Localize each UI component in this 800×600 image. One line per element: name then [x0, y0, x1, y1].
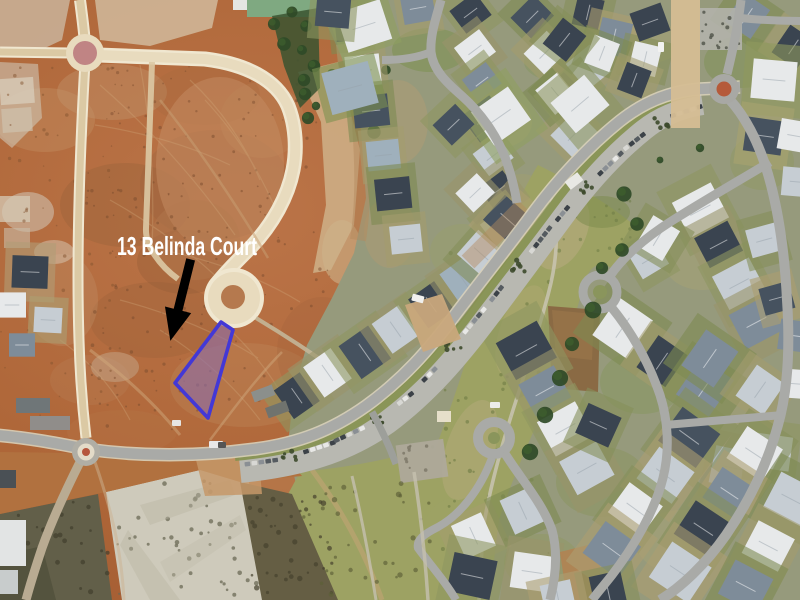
svg-text:13 Belinda Court: 13 Belinda Court	[117, 231, 257, 261]
